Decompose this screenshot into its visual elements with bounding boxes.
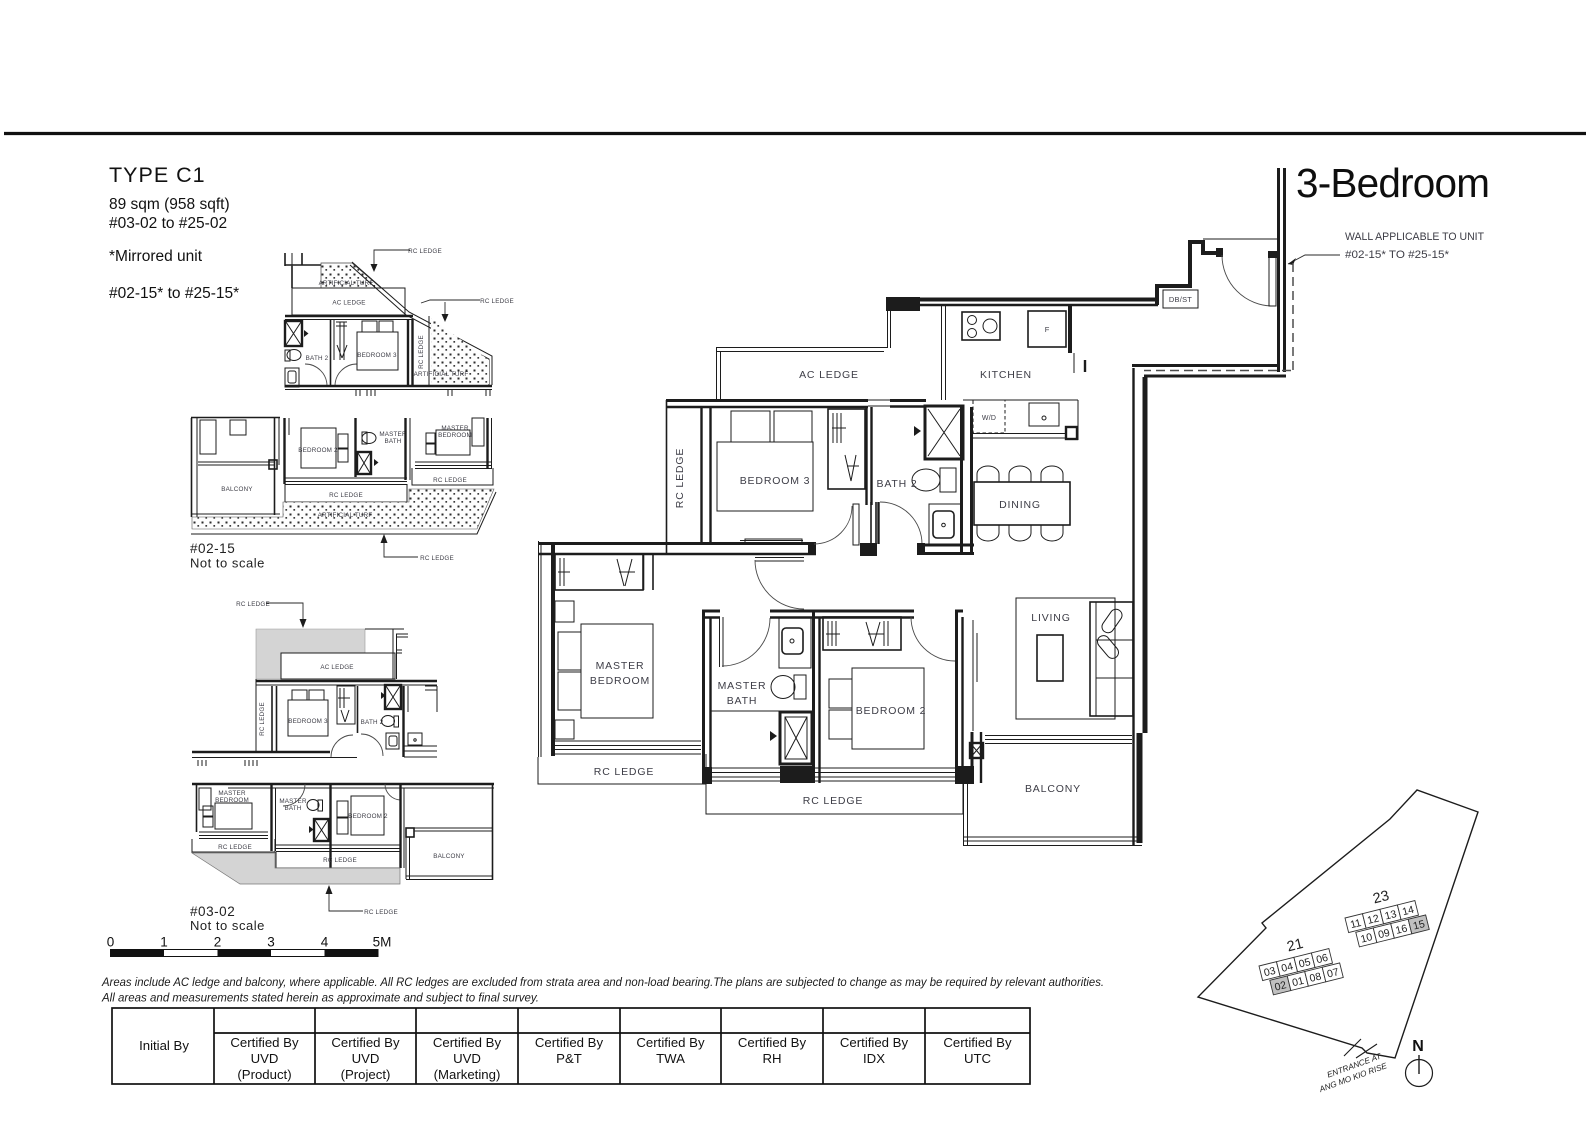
svg-text:#02-15* to #25-15*: #02-15* to #25-15*	[109, 285, 239, 302]
svg-text:RH: RH	[762, 1051, 781, 1066]
svg-text:BALCONY: BALCONY	[1025, 783, 1081, 795]
svg-text:Not to scale: Not to scale	[190, 556, 265, 571]
svg-text:Certified By: Certified By	[230, 1035, 299, 1050]
svg-text:MASTER: MASTER	[718, 680, 767, 692]
svg-text:RC LEDGE: RC LEDGE	[329, 492, 363, 499]
svg-text:0: 0	[107, 935, 115, 950]
svg-text:BEDROOM 2: BEDROOM 2	[298, 447, 338, 454]
svg-text:Certified By: Certified By	[943, 1035, 1012, 1050]
svg-text:N: N	[1412, 1038, 1424, 1055]
svg-text:3: 3	[267, 935, 275, 950]
svg-text:TYPE C1: TYPE C1	[109, 163, 206, 187]
svg-text:IDX: IDX	[863, 1051, 885, 1066]
svg-text:#02-15: #02-15	[190, 541, 235, 556]
svg-text:WALL APPLICABLE TO UNIT: WALL APPLICABLE TO UNIT	[1345, 231, 1485, 243]
svg-text:BEDROOM 3: BEDROOM 3	[288, 718, 328, 725]
svg-text:*Mirrored unit: *Mirrored unit	[109, 248, 203, 265]
svg-text:BEDROOM 3: BEDROOM 3	[357, 352, 397, 359]
svg-text:RC LEDGE: RC LEDGE	[418, 335, 425, 369]
svg-text:RC LEDGE: RC LEDGE	[218, 844, 252, 851]
svg-text:Certified By: Certified By	[840, 1035, 909, 1050]
svg-text:#02-15* TO #25-15*: #02-15* TO #25-15*	[1345, 249, 1449, 261]
svg-text:BALCONY: BALCONY	[433, 853, 465, 860]
svg-text:BEDROOM: BEDROOM	[438, 432, 472, 439]
svg-text:RC LEDGE: RC LEDGE	[480, 298, 514, 305]
svg-text:#03-02 to #25-02: #03-02 to #25-02	[109, 215, 227, 232]
svg-text:2: 2	[214, 935, 222, 950]
svg-text:#03-02: #03-02	[190, 904, 235, 919]
svg-text:UVD: UVD	[453, 1051, 481, 1066]
svg-text:RC LEDGE: RC LEDGE	[594, 766, 654, 778]
svg-text:AC LEDGE: AC LEDGE	[320, 664, 353, 671]
svg-text:BEDROOM 2: BEDROOM 2	[348, 813, 388, 820]
svg-text:3-Bedroom: 3-Bedroom	[1296, 160, 1489, 206]
svg-text:RC LEDGE: RC LEDGE	[236, 601, 270, 608]
svg-text:RC LEDGE: RC LEDGE	[433, 477, 467, 484]
svg-text:89 sqm (958 sqft): 89 sqm (958 sqft)	[109, 196, 230, 213]
svg-text:BATH: BATH	[727, 695, 758, 707]
svg-text:All areas and measurements sta: All areas and measurements stated herein…	[101, 991, 539, 1005]
svg-text:RC LEDGE: RC LEDGE	[803, 795, 863, 807]
svg-text:Areas include AC ledge and bal: Areas include AC ledge and balcony, wher…	[101, 975, 1104, 989]
svg-text:BATH 2: BATH 2	[361, 719, 384, 726]
svg-text:5M: 5M	[373, 935, 392, 950]
svg-text:Certified By: Certified By	[433, 1035, 502, 1050]
svg-text:23: 23	[1371, 888, 1391, 907]
svg-text:Certified By: Certified By	[535, 1035, 604, 1050]
svg-text:MASTER: MASTER	[379, 431, 407, 438]
svg-text:UVD: UVD	[251, 1051, 279, 1066]
svg-text:BEDROOM 2: BEDROOM 2	[856, 705, 927, 717]
svg-text:UVD: UVD	[352, 1051, 380, 1066]
svg-text:RC LEDGE: RC LEDGE	[420, 555, 454, 562]
svg-text:(Project): (Project)	[341, 1067, 391, 1082]
svg-text:BATH 2: BATH 2	[876, 478, 917, 490]
svg-text:BATH: BATH	[384, 438, 401, 445]
svg-text:MASTER: MASTER	[441, 425, 469, 432]
svg-text:RC LEDGE: RC LEDGE	[259, 702, 266, 736]
svg-text:RC LEDGE: RC LEDGE	[408, 248, 442, 255]
svg-text:21: 21	[1285, 936, 1305, 955]
svg-text:ARTIFICIAL TURF: ARTIFICIAL TURF	[318, 512, 373, 519]
svg-text:ARTIFICIAL TURF: ARTIFICIAL TURF	[319, 280, 374, 287]
svg-text:MASTER: MASTER	[596, 660, 645, 672]
svg-text:ARTIFICIAL TURF: ARTIFICIAL TURF	[414, 371, 469, 378]
svg-text:TWA: TWA	[656, 1051, 685, 1066]
svg-text:Certified By: Certified By	[738, 1035, 807, 1050]
svg-text:RC LEDGE: RC LEDGE	[323, 857, 357, 864]
svg-text:BATH 2: BATH 2	[306, 355, 329, 362]
svg-text:W/D: W/D	[982, 415, 996, 422]
svg-text:MASTER: MASTER	[218, 790, 246, 797]
svg-text:AC LEDGE: AC LEDGE	[799, 369, 859, 381]
svg-text:RC LEDGE: RC LEDGE	[674, 448, 686, 508]
svg-text:LIVING: LIVING	[1031, 612, 1070, 624]
svg-text:P&T: P&T	[556, 1051, 582, 1066]
svg-text:UTC: UTC	[964, 1051, 992, 1066]
svg-text:Initial By: Initial By	[139, 1038, 189, 1053]
svg-text:BEDROOM 3: BEDROOM 3	[740, 475, 811, 487]
svg-text:AC LEDGE: AC LEDGE	[332, 300, 365, 307]
svg-text:Not to scale: Not to scale	[190, 918, 265, 933]
svg-text:BEDROOM: BEDROOM	[590, 675, 650, 687]
svg-text:Certified By: Certified By	[331, 1035, 400, 1050]
svg-text:(Marketing): (Marketing)	[434, 1067, 501, 1082]
svg-text:KITCHEN: KITCHEN	[980, 369, 1032, 381]
svg-text:(Product): (Product)	[237, 1067, 291, 1082]
svg-text:DINING: DINING	[999, 499, 1041, 511]
svg-text:1: 1	[160, 935, 168, 950]
svg-text:4: 4	[321, 935, 329, 950]
svg-text:BALCONY: BALCONY	[221, 486, 253, 493]
svg-text:RC LEDGE: RC LEDGE	[364, 909, 398, 916]
svg-text:DB/ST: DB/ST	[1169, 295, 1192, 304]
svg-text:F: F	[1045, 325, 1050, 334]
svg-text:Certified By: Certified By	[636, 1035, 705, 1050]
